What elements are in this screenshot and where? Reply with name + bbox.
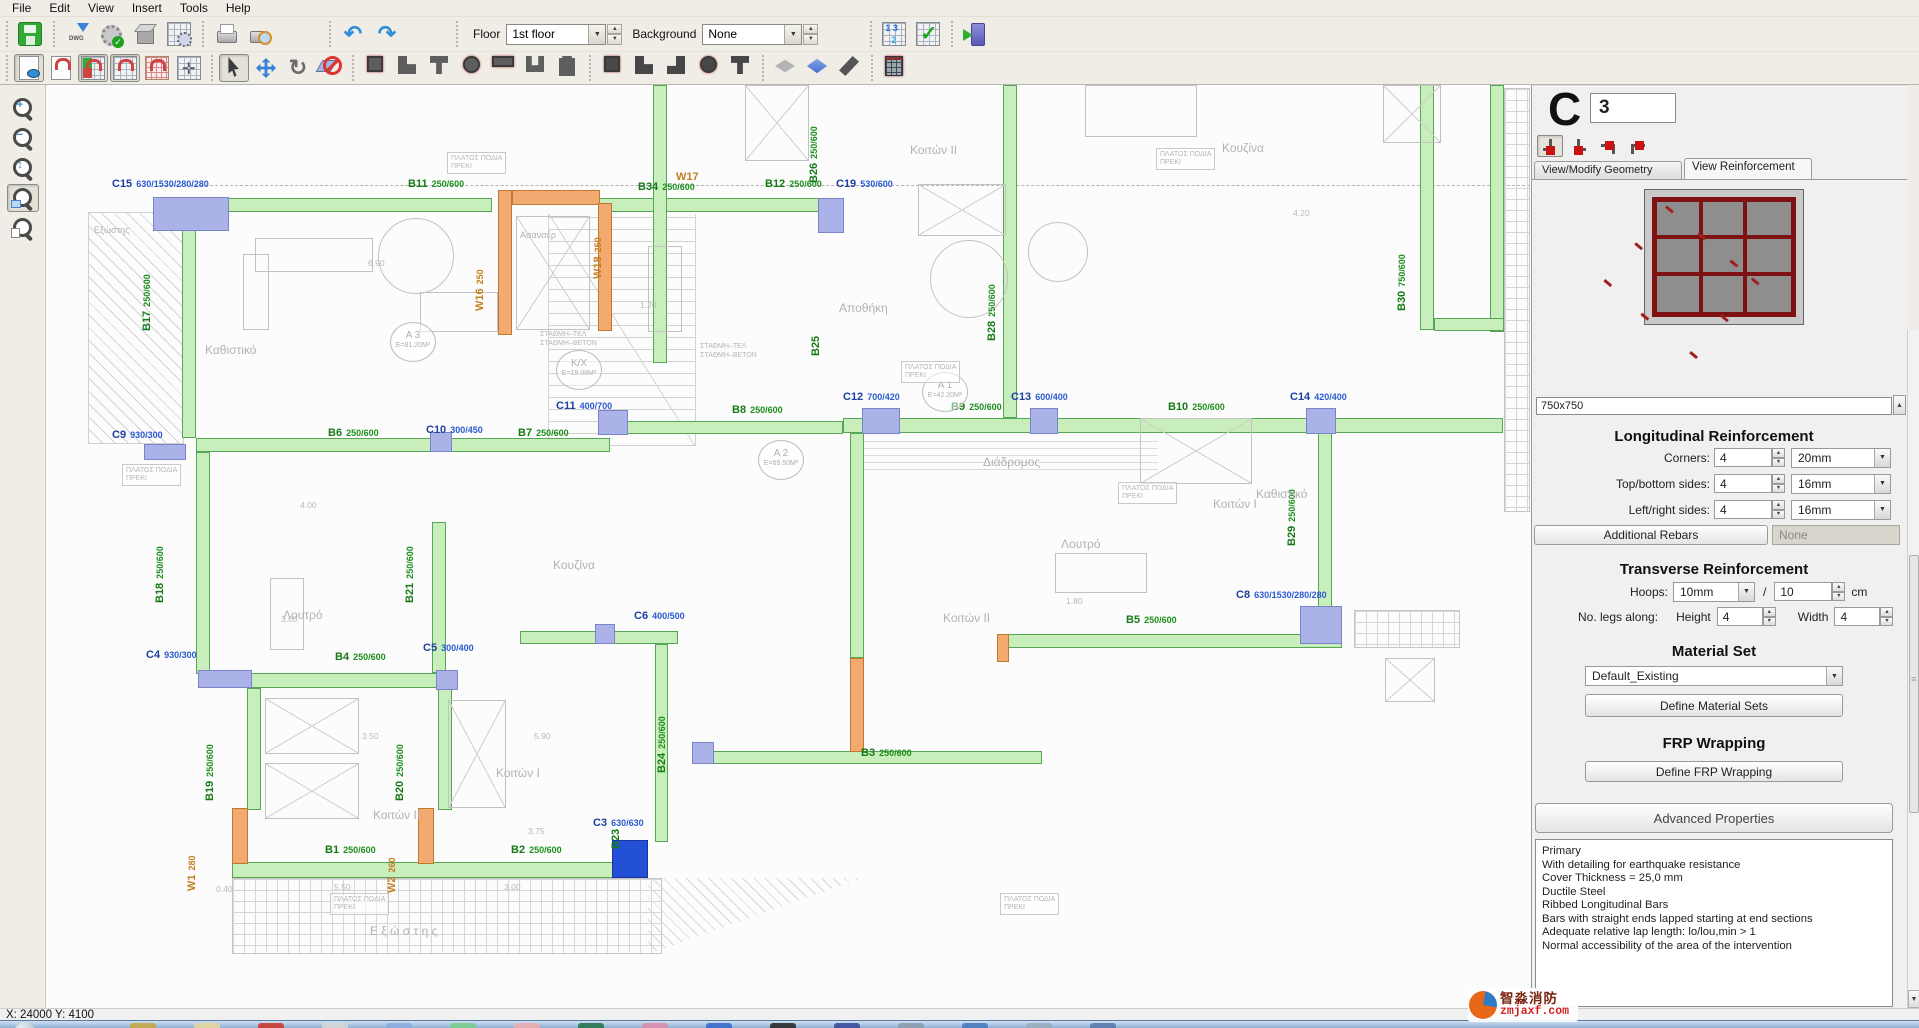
furniture (420, 292, 498, 332)
taskbar-icon[interactable] (1090, 1023, 1116, 1028)
zoom-in-button[interactable]: + (7, 94, 39, 122)
toolbar-separator (49, 21, 58, 47)
plan-canvas[interactable]: C15630/1530/280/280B11250/600B34250/600W… (46, 85, 1531, 1008)
column[interactable] (818, 198, 844, 233)
undo-button[interactable] (337, 20, 369, 48)
plan-label-c14: C14420/400 (1290, 392, 1347, 403)
wcol-l2-icon (664, 56, 688, 80)
furniture (378, 218, 454, 294)
toolbar-separator (198, 21, 207, 47)
toolbar-gap (404, 17, 450, 51)
furniture (1085, 85, 1197, 137)
zoom-out-icon: − (11, 126, 35, 150)
legs-height-field[interactable]: 4 (1717, 607, 1763, 626)
plan-label-b26: B26250/600 (809, 126, 820, 183)
dimension-label: 1.80 (1066, 596, 1083, 606)
undo-icon (341, 22, 365, 46)
room-label: Λουτρό (1061, 537, 1101, 551)
height-label: Height (1676, 610, 1711, 624)
taskbar-icon[interactable] (898, 1023, 924, 1028)
furniture (448, 700, 506, 808)
col-circle-button[interactable] (456, 54, 486, 82)
grid-magnet-button[interactable] (110, 54, 140, 82)
toolbar-separator (2, 21, 11, 47)
lintel-note: ΠΛΑΤΟΣ ΠΟΔΙΑΠΡΕΚΙ (901, 361, 960, 383)
exit-icon (963, 22, 987, 46)
wcol-l-button[interactable] (629, 54, 659, 82)
dimension-label: 4.00 (300, 500, 317, 510)
plan-label-c12: C12700/420 (843, 392, 900, 403)
toolbar-gap (277, 17, 323, 51)
left-right-count-field[interactable]: 4 (1714, 500, 1772, 519)
plan-label-b20: B20250/600 (395, 744, 406, 801)
dimension-label: 4.20 (1293, 208, 1310, 218)
print-preview-icon (248, 22, 272, 46)
legs-label: No. legs along: (1578, 610, 1658, 624)
move-button[interactable] (251, 54, 281, 82)
lintel-note: ΠΛΑΤΟΣ ΠΟΔΙΑΠΡΕΚΙ (330, 893, 389, 915)
plan-label-b11: B11250/600 (408, 179, 464, 190)
taskbar-icon[interactable] (770, 1023, 796, 1028)
slab-button[interactable] (770, 54, 800, 82)
corners-size-select[interactable]: 20mm▼ (1791, 448, 1891, 468)
column[interactable] (598, 410, 628, 435)
col-u-icon (523, 56, 547, 80)
wcol-tee-button[interactable] (725, 54, 755, 82)
menu-view[interactable]: View (80, 0, 122, 16)
watermark: 智淼消防 zmjaxf.com (1468, 988, 1578, 1022)
watermark-name: 智淼消防 (1500, 992, 1569, 1005)
dimension-label: 3.00 (504, 882, 521, 892)
doc-magnet-button[interactable] (46, 54, 76, 82)
menu-help[interactable]: Help (218, 0, 259, 16)
print-button[interactable] (210, 20, 242, 48)
zoom-sheet-icon (11, 216, 35, 240)
dimension-label: 0.40 (216, 884, 233, 894)
level-note: ΣΤΑΘΜΗ–ΤΕΛΣΤΑΘΜΗ–ΒΕΤΟΝ (540, 330, 597, 348)
print-preview-button[interactable] (244, 20, 276, 48)
corners-count-field[interactable]: 4 (1714, 448, 1772, 467)
rotate-button[interactable] (283, 54, 313, 82)
wcol-square-icon (600, 56, 624, 80)
furniture (1055, 553, 1147, 593)
building-icon (882, 56, 906, 80)
col-u-button[interactable] (520, 54, 550, 82)
dropdown-arrow-icon[interactable]: ▼ (1826, 667, 1842, 685)
slab-blue-button[interactable] (802, 54, 832, 82)
taskbar-icon[interactable] (962, 1023, 988, 1028)
material-set-heading: Material Set (1532, 643, 1896, 660)
taskbar-icon[interactable] (322, 1023, 348, 1028)
taskbar-icon[interactable] (706, 1023, 732, 1028)
doc-eye-button[interactable] (14, 54, 44, 82)
no-entry-button[interactable] (315, 54, 345, 82)
beam[interactable] (232, 862, 648, 878)
toolbar-main: Floor1st floor▼▲▼BackgroundNone▼▲▼ (0, 17, 1919, 52)
menu-file[interactable]: File (4, 0, 39, 16)
dimension-label: 3.50 (362, 731, 379, 741)
legs-width-field[interactable]: 4 (1834, 607, 1880, 626)
plan-label-b1: B1250/600 (325, 845, 376, 856)
toolbar-separator (207, 55, 216, 81)
lintel-note: ΠΛΑΤΟΣ ΠΟΔΙΑΠΡΕΚΙ (1000, 893, 1059, 915)
beam[interactable] (196, 438, 610, 452)
doc-eye-icon (17, 56, 41, 80)
wall[interactable] (418, 808, 434, 864)
corner-orientation-button-3[interactable] (1595, 135, 1621, 157)
col-circle-icon (459, 56, 483, 80)
corners-spinner[interactable]: ▲▼ (1772, 448, 1785, 467)
col-rect-icon (491, 56, 515, 80)
beam[interactable] (182, 212, 196, 438)
doc-magnet-icon (49, 56, 73, 80)
redo-button[interactable] (371, 20, 403, 48)
grid-magnet-icon (113, 56, 137, 80)
dropdown-arrow-icon[interactable]: ▼ (1874, 449, 1890, 467)
hoop-spacing-spinner[interactable]: ▲▼ (1832, 582, 1845, 601)
furniture (918, 184, 1006, 236)
column[interactable] (692, 742, 714, 764)
plan-label-b24: B24250/600 (657, 716, 668, 773)
advanced-properties-button[interactable]: Advanced Properties (1535, 803, 1893, 833)
background-select-spinner[interactable]: ▲▼ (803, 24, 818, 45)
furniture (1028, 222, 1088, 282)
plan-label-b34: B34250/600 (638, 182, 695, 193)
toolbar-separator (2, 55, 11, 81)
hoops-label: Hoops: (1532, 585, 1668, 599)
wall[interactable] (850, 658, 864, 752)
menu-tools[interactable]: Tools (172, 0, 216, 16)
plan-label-b7: B7250/600 (518, 428, 569, 439)
plan-label-w1: W1280 (187, 855, 198, 891)
define-material-sets-button[interactable]: Define Material Sets (1585, 694, 1843, 717)
room-label: Καθιστικό (1256, 487, 1307, 501)
taskbar-icon[interactable] (642, 1023, 668, 1028)
beam[interactable] (196, 452, 210, 674)
hoop-spacing-field[interactable]: 10 (1774, 582, 1832, 601)
slab-blue-icon (805, 56, 829, 80)
top-bottom-spinner[interactable]: ▲▼ (1772, 474, 1785, 493)
left-right-size-select[interactable]: 16mm▼ (1791, 500, 1891, 520)
lintel-note: ΠΛΑΤΟΣ ΠΟΔΙΑΠΡΕΚΙ (447, 152, 506, 174)
column[interactable] (1030, 408, 1058, 434)
wcol-circle-icon (696, 56, 720, 80)
plan-label-b4: B4250/600 (335, 652, 386, 663)
save-button[interactable] (14, 20, 46, 48)
ramp-button[interactable] (834, 54, 864, 82)
hatch-grid (1504, 88, 1530, 512)
toolbar-separator (585, 55, 594, 81)
column[interactable] (144, 444, 186, 460)
material-set-select[interactable]: Default_Existing▼ (1585, 666, 1843, 686)
floor-select-spinner[interactable]: ▲▼ (607, 24, 622, 45)
zoom-in-icon: + (11, 96, 35, 120)
plan-label-c15: C15630/1530/280/280 (112, 179, 209, 190)
furniture (255, 238, 373, 272)
wcol-l-icon (632, 56, 656, 80)
section-size-field[interactable]: 750x750 (1536, 397, 1892, 415)
left-right-spinner[interactable]: ▲▼ (1772, 500, 1785, 519)
zoom-extents-icon: ↕ (11, 156, 35, 180)
zoom-sheet-button[interactable] (7, 214, 39, 242)
toolbar-elements (0, 52, 1919, 85)
legs-height-spinner[interactable]: ▲▼ (1763, 607, 1776, 626)
corner-orientation-button-4[interactable] (1625, 135, 1651, 157)
width-label: Width (1798, 610, 1829, 624)
corner-orientation-button-1[interactable] (1537, 135, 1563, 157)
frp-heading: FRP Wrapping (1532, 735, 1896, 752)
taskbar-icon[interactable] (450, 1023, 476, 1028)
grid-magnet-color-button[interactable] (78, 54, 108, 82)
room-label: Ασανσέρ (520, 230, 556, 240)
toolbar-separator (866, 21, 875, 47)
grid-arrows-icon (177, 56, 201, 80)
watermark-logo-icon (1469, 991, 1497, 1019)
select-cursor-button[interactable] (219, 54, 249, 82)
storey-numbering-icon (882, 22, 906, 46)
hatch-tri (648, 878, 863, 954)
wall[interactable] (232, 808, 248, 864)
zoom-window-icon (11, 186, 35, 210)
watermark-url: zmjaxf.com (1500, 1005, 1569, 1018)
plan-label-b25: B25 (811, 336, 822, 356)
lintel-note: ΠΛΑΤΟΣ ΠΟΔΙΑΠΡΕΚΙ (122, 464, 181, 486)
settings-check-icon (99, 22, 123, 46)
slash-label: / (1763, 585, 1766, 599)
plan-label-b18: B18250/600 (155, 546, 166, 603)
lintel-note: ΠΛΑΤΟΣ ΠΟΔΙΑΠΡΕΚΙ (1156, 148, 1215, 170)
panel-scrollbar[interactable]: ▼ (1907, 330, 1919, 1008)
grid-check-icon (916, 22, 940, 46)
col-l-button[interactable] (392, 54, 422, 82)
plan-label-b2: B2250/600 (511, 845, 562, 856)
furniture (648, 246, 682, 332)
plan-label-c6: C6400/500 (634, 611, 685, 622)
plan-label-b6: B6250/600 (328, 428, 379, 439)
taskbar-icon[interactable] (130, 1023, 156, 1028)
taskbar-icon[interactable] (386, 1023, 412, 1028)
dropdown-arrow-icon[interactable]: ▼ (1874, 475, 1890, 493)
corners-label: Corners: (1532, 451, 1710, 465)
save-icon (18, 22, 42, 46)
additional-rebars-value: None (1772, 525, 1900, 545)
view-3d-button[interactable] (129, 20, 161, 48)
zoom-window-button[interactable] (7, 184, 39, 212)
wcol-square-button[interactable] (597, 54, 627, 82)
dimension-label: 6.90 (368, 258, 385, 268)
column[interactable] (198, 670, 252, 688)
grid-settings-button[interactable] (163, 20, 195, 48)
plan-label-b5: B5250/600 (1126, 615, 1177, 626)
plan-label-c13: C13600/400 (1011, 392, 1068, 403)
area-label: A 3E=81.20M² (390, 322, 436, 362)
dropdown-arrow-icon[interactable]: ▼ (1738, 583, 1754, 601)
building-button[interactable] (879, 54, 909, 82)
beam[interactable] (997, 634, 1342, 648)
zoom-out-button[interactable]: − (7, 124, 39, 152)
grid-arrows-button[interactable] (174, 54, 204, 82)
plan-label-c5: C5300/400 (423, 643, 474, 654)
scrollbar-thumb[interactable] (1909, 555, 1919, 813)
floor-label: Floor (473, 27, 500, 41)
menu-bar: FileEditViewInsertToolsHelp (0, 0, 1919, 17)
ramp-icon (837, 56, 861, 80)
no-entry-icon (318, 56, 342, 80)
beam[interactable] (1490, 85, 1504, 332)
room-label: Ε ξ ώ σ τ η ς (370, 924, 437, 938)
area-label: A 2E=69.50M² (758, 440, 804, 480)
plan-label-b17: B17250/600 (142, 274, 153, 331)
wall[interactable] (512, 190, 600, 205)
beam[interactable] (247, 688, 261, 810)
column[interactable] (153, 197, 229, 231)
hoops-size-select[interactable]: 10mm▼ (1673, 582, 1755, 602)
col-tee-button[interactable] (552, 54, 582, 82)
column[interactable] (1306, 408, 1336, 434)
toolbar-separator (348, 55, 357, 81)
room-label: Κοιτών ΙΙ (373, 808, 420, 822)
print-icon (214, 22, 238, 46)
wcol-circle-button[interactable] (693, 54, 723, 82)
hatch-grid (232, 878, 662, 954)
plan-label-c10: C10300/450 (426, 425, 483, 436)
col-t-icon (427, 56, 451, 80)
col-rect-button[interactable] (488, 54, 518, 82)
unit-label: cm (1851, 585, 1867, 599)
area-label: K/XE=19.08M² (556, 350, 602, 390)
wcol-l2-button[interactable] (661, 54, 691, 82)
import-dwg-icon (65, 22, 89, 46)
plan-label-c19: C19530/600 (836, 179, 893, 190)
left-right-label: Left/right sides: (1532, 503, 1710, 517)
room-label: Κουζίνα (1222, 141, 1264, 155)
view-3d-icon (133, 22, 157, 46)
plan-label-b19: B19250/600 (205, 744, 216, 801)
beam[interactable] (598, 198, 820, 212)
additional-rebars-button[interactable]: Additional Rebars (1534, 525, 1768, 545)
plan-label-c9: C9930/300 (112, 430, 163, 441)
room-label: Κοιτών Ι (1213, 497, 1257, 511)
background-select[interactable]: None▼ (702, 24, 802, 45)
furniture (265, 763, 359, 819)
corner-orientation-button-2[interactable] (1565, 135, 1591, 157)
dropdown-arrow-icon[interactable]: ▼ (1874, 501, 1890, 519)
dropdown-arrow-icon[interactable]: ▼ (588, 25, 605, 44)
taskbar-icon[interactable] (578, 1023, 604, 1028)
dimension-label: 3.75 (528, 826, 545, 836)
tab-view-reinforcement[interactable]: View Reinforcement (1684, 158, 1812, 179)
wall[interactable] (498, 190, 512, 335)
toolbar-separator (867, 55, 876, 81)
toolbar-zoom: +−↕ (0, 85, 46, 1008)
dimension-label: 3.00 (281, 614, 298, 624)
column[interactable] (1300, 606, 1342, 644)
settings-check-button[interactable] (95, 20, 127, 48)
beam[interactable] (850, 433, 864, 658)
menu-insert[interactable]: Insert (124, 0, 170, 16)
define-frp-wrapping-button[interactable]: Define FRP Wrapping (1585, 761, 1843, 782)
plan-label-c3: C3630/630 (593, 818, 644, 829)
hatch-grid (1354, 610, 1460, 648)
furniture (243, 254, 269, 330)
slab-icon (773, 56, 797, 80)
lintel-note: ΠΛΑΤΟΣ ΠΟΔΙΑΠΡΕΚΙ (1118, 482, 1177, 504)
plan-label-w2: W2260 (387, 857, 398, 893)
top-bottom-size-select[interactable]: 16mm▼ (1791, 474, 1891, 494)
taskbar-icon[interactable] (194, 1023, 220, 1028)
windows-taskbar[interactable] (0, 1020, 1919, 1028)
column[interactable] (595, 624, 615, 644)
dimension-label: 5.50 (334, 882, 351, 892)
storey-numbering-button[interactable] (878, 20, 910, 48)
zoom-extents-button[interactable]: ↕ (7, 154, 39, 182)
wall[interactable] (997, 634, 1009, 662)
furniture (1383, 85, 1441, 143)
plan-label-w18: W18250 (593, 237, 604, 279)
col-l-icon (395, 56, 419, 80)
hatch-diag (88, 212, 184, 444)
col-square-icon (363, 56, 387, 80)
taskbar-icon[interactable] (834, 1023, 860, 1028)
toolbar-separator (452, 21, 461, 47)
level-note: ΣΤΑΘΜΗ–ΤΕΛΣΤΑΘΜΗ–ΒΕΤΟΝ (700, 342, 757, 360)
furniture (1140, 418, 1252, 484)
column[interactable] (436, 670, 458, 690)
transverse-heading: Transverse Reinforcement (1532, 561, 1896, 578)
plan-label-c11: C11400/700 (556, 401, 612, 412)
legs-width-spinner[interactable]: ▲▼ (1880, 607, 1893, 626)
beam[interactable] (1434, 318, 1504, 331)
exit-button[interactable] (959, 20, 991, 48)
redo-icon (375, 22, 399, 46)
plan-label-b28: B28250/600 (987, 284, 998, 341)
room-label: Διάδρομος (983, 455, 1040, 469)
plan-label-b8: B8250/600 (732, 405, 783, 416)
start-orb[interactable] (14, 1022, 36, 1028)
menu-edit[interactable]: Edit (41, 0, 78, 16)
grid-check-button[interactable] (912, 20, 944, 48)
redgrid-magnet-icon (145, 56, 169, 80)
floor-select[interactable]: 1st floor▼ (506, 24, 606, 45)
beam[interactable] (196, 198, 492, 212)
toolbar-separator (758, 55, 767, 81)
import-dwg-button[interactable] (61, 20, 93, 48)
room-label: Κοιτών Ι (496, 766, 540, 780)
taskbar-icon[interactable] (514, 1023, 540, 1028)
element-number-field[interactable]: 3 (1590, 93, 1676, 123)
plan-label-b10: B10250/600 (1168, 402, 1225, 413)
select-cursor-icon (222, 56, 246, 80)
beam[interactable] (1318, 433, 1332, 609)
col-t-button[interactable] (424, 54, 454, 82)
plan-label-b3: B3250/600 (861, 748, 912, 759)
top-bottom-count-field[interactable]: 4 (1714, 474, 1772, 493)
scrollbar-down-arrow[interactable]: ▼ (1908, 990, 1919, 1008)
redgrid-magnet-button[interactable] (142, 54, 172, 82)
room-label: Κοιτών ΙΙ (943, 611, 990, 625)
section-size-scroll-up[interactable]: ▲ (1893, 395, 1906, 415)
col-tee-icon (555, 56, 579, 80)
dropdown-arrow-icon[interactable]: ▼ (784, 25, 801, 44)
tab-view-modify-geometry[interactable]: View/Modify Geometry (1534, 161, 1682, 179)
taskbar-icon[interactable] (1026, 1023, 1052, 1028)
taskbar-icon[interactable] (258, 1023, 284, 1028)
wcol-tee-icon (728, 56, 752, 80)
column[interactable] (862, 408, 900, 434)
beam[interactable] (610, 421, 843, 434)
beam[interactable] (1003, 85, 1017, 418)
col-square-button[interactable] (360, 54, 390, 82)
